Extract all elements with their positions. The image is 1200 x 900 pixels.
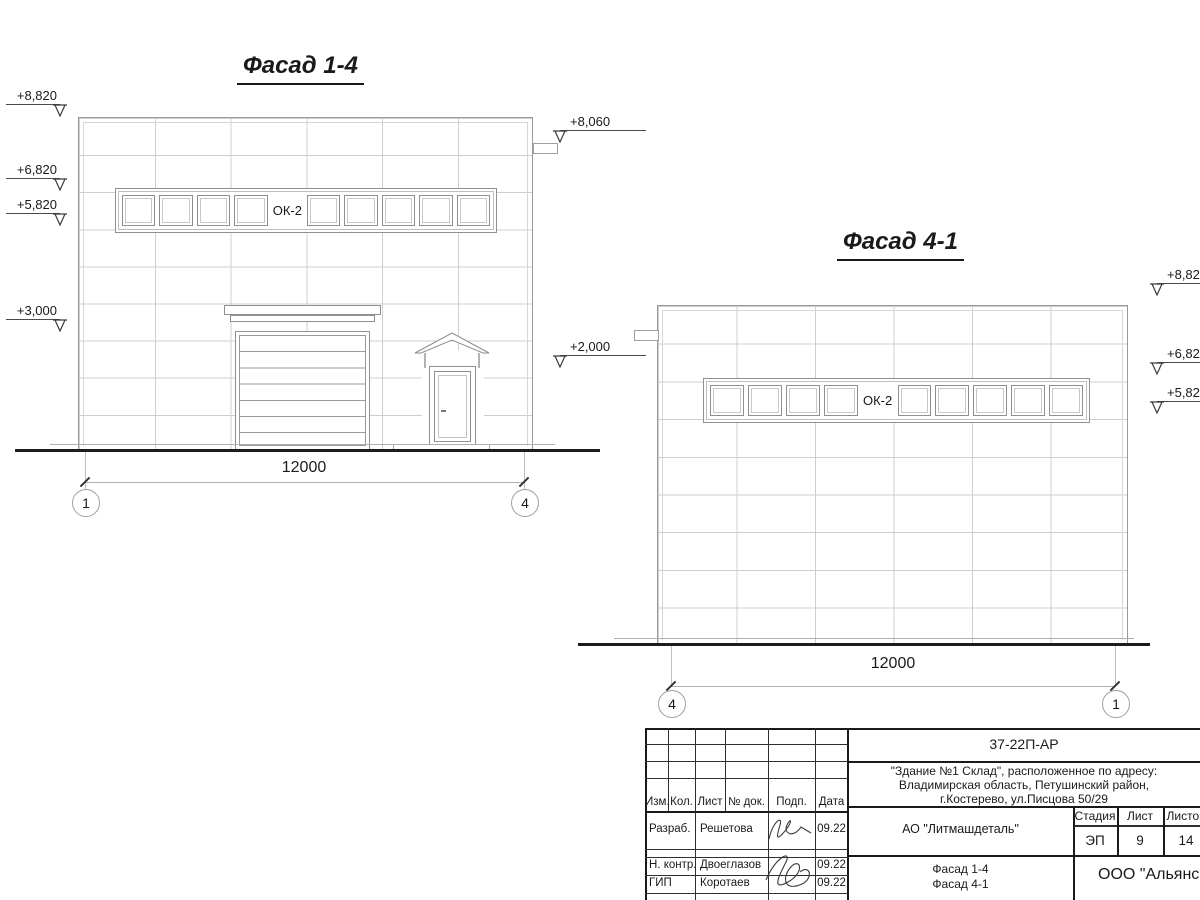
axis-bubble-4: 4 — [658, 690, 686, 718]
dimension-line — [85, 482, 524, 483]
window-pane — [307, 195, 340, 226]
elevation-arrow-icon — [552, 355, 568, 368]
window-pane — [122, 195, 155, 226]
titleblock-line — [645, 778, 848, 779]
elevation-mark: +8,060 — [560, 114, 646, 131]
sheet-title-line1: Фасад 1-4 — [848, 862, 1073, 876]
elevation-arrow-icon — [52, 104, 68, 117]
col-izm: Изм. — [645, 796, 668, 808]
dimension-line — [671, 686, 1115, 687]
elevation-mark: +2,000 — [560, 339, 646, 356]
elevation-mark: +6,820 — [1157, 346, 1200, 363]
titleblock-line — [645, 811, 848, 813]
object-address-line1: "Здание №1 Склад", расположенное по адре… — [848, 764, 1200, 778]
elevation-arrow-icon — [52, 319, 68, 332]
elevation-arrow-icon — [1149, 283, 1165, 296]
window-pane — [382, 195, 415, 226]
extension-line — [524, 452, 525, 490]
row-date: 09.22 — [815, 823, 848, 835]
window-pane — [344, 195, 377, 226]
titleblock-line — [848, 761, 1200, 763]
row-role: Н. контр. — [649, 859, 696, 871]
col-podp: Подп. — [768, 796, 815, 808]
titleblock-line — [848, 855, 1200, 857]
gutter-outlet-icon — [533, 143, 558, 154]
titleblock-border — [645, 728, 1200, 730]
row-name: Решетова — [700, 823, 753, 835]
extension-line — [85, 452, 86, 490]
window-band-ok2: ОК-2 — [703, 378, 1090, 423]
dimension-value: 12000 — [254, 459, 354, 477]
window-pane — [234, 195, 267, 226]
window-pane — [973, 385, 1007, 416]
door-leaf — [434, 371, 471, 442]
plinth-line — [614, 638, 1134, 639]
titleblock-line — [695, 728, 696, 900]
window-pane — [1011, 385, 1045, 416]
titleblock-line — [1073, 825, 1200, 827]
signature — [758, 846, 820, 896]
ground-line — [15, 449, 600, 452]
axis-bubble-4: 4 — [511, 489, 539, 517]
titleblock-line — [848, 806, 1200, 808]
window-band-frame: ОК-2 — [118, 191, 494, 230]
door-gable-canopy-icon — [413, 331, 491, 371]
titleblock-line — [645, 744, 848, 745]
elevation-arrow-icon — [52, 213, 68, 226]
sheet-label: Лист — [1117, 809, 1163, 823]
plinth-line — [50, 444, 555, 445]
elevation-arrow-icon — [52, 178, 68, 191]
elevation-mark: +3,000 — [6, 303, 60, 320]
signature — [763, 813, 815, 847]
window-pane — [710, 385, 744, 416]
window-band-frame: ОК-2 — [706, 381, 1087, 420]
sheet: Фасад 1-4 ОК-2 — [0, 0, 1200, 900]
col-kol: Кол. — [668, 796, 695, 808]
stage-value: ЭП — [1073, 833, 1117, 848]
object-address-line2: Владимирская область, Петушинский район, — [848, 778, 1200, 792]
elevation-mark: +8,820 — [6, 88, 60, 105]
window-pane — [197, 195, 230, 226]
organization-name: ООО "Альянс" — [1073, 866, 1200, 884]
dimension-value: 12000 — [843, 655, 943, 673]
window-pane — [935, 385, 969, 416]
axis-bubble-1: 1 — [72, 489, 100, 517]
stage-label: Стадия — [1073, 809, 1117, 823]
elevation-mark: +5,820 — [1157, 385, 1200, 402]
gutter-outlet-icon — [634, 330, 659, 341]
elevation-mark: +6,820 — [6, 162, 60, 179]
facade-4-1-wall — [657, 305, 1128, 645]
window-band-label: ОК-2 — [862, 385, 894, 416]
window-pane — [419, 195, 452, 226]
ground-line — [578, 643, 1150, 646]
elevation-arrow-icon — [552, 130, 568, 143]
col-list: Лист — [695, 796, 725, 808]
window-pane — [824, 385, 858, 416]
window-pane — [457, 195, 490, 226]
col-data: Дата — [815, 796, 848, 808]
door-handle-icon — [441, 410, 446, 412]
extension-line — [1115, 646, 1116, 687]
row-name: Коротаев — [700, 877, 750, 889]
window-pane — [159, 195, 192, 226]
window-pane — [1049, 385, 1083, 416]
window-band-label: ОК-2 — [272, 195, 303, 226]
sheets-label: Листов — [1163, 809, 1200, 823]
window-pane — [748, 385, 782, 416]
extension-line — [671, 646, 672, 687]
window-pane — [898, 385, 932, 416]
elevation-mark: +5,820 — [6, 197, 60, 214]
row-role: ГИП — [649, 877, 672, 889]
row-name: Двоеглазов — [700, 859, 761, 871]
titleblock-line — [645, 761, 848, 762]
window-pane — [786, 385, 820, 416]
elevation-mark: +8,820 — [1157, 267, 1200, 284]
facade-1-4-title: Фасад 1-4 — [237, 52, 364, 85]
object-address-line3: г.Костерево, ул.Писцова 50/29 — [848, 792, 1200, 806]
door-leaf-inner — [438, 375, 467, 438]
facade-4-1-title: Фасад 4-1 — [837, 228, 964, 261]
sheet-title-line2: Фасад 4-1 — [848, 877, 1073, 891]
client-name: АО "Литмашдеталь" — [848, 822, 1073, 836]
garage-door — [235, 331, 370, 450]
window-band-ok2: ОК-2 — [115, 188, 497, 233]
garage-canopy-lower — [230, 315, 375, 322]
garage-canopy-upper — [224, 305, 381, 315]
sheet-value: 9 — [1117, 833, 1163, 848]
elevation-arrow-icon — [1149, 401, 1165, 414]
entrance-door — [429, 366, 476, 447]
col-ndok: № док. — [725, 796, 768, 808]
garage-door-slats — [239, 335, 366, 446]
row-role: Разраб. — [649, 823, 690, 835]
doc-code: 37-22П-АР — [848, 736, 1200, 752]
axis-bubble-1: 1 — [1102, 690, 1130, 718]
elevation-arrow-icon — [1149, 362, 1165, 375]
sheets-value: 14 — [1163, 833, 1200, 848]
